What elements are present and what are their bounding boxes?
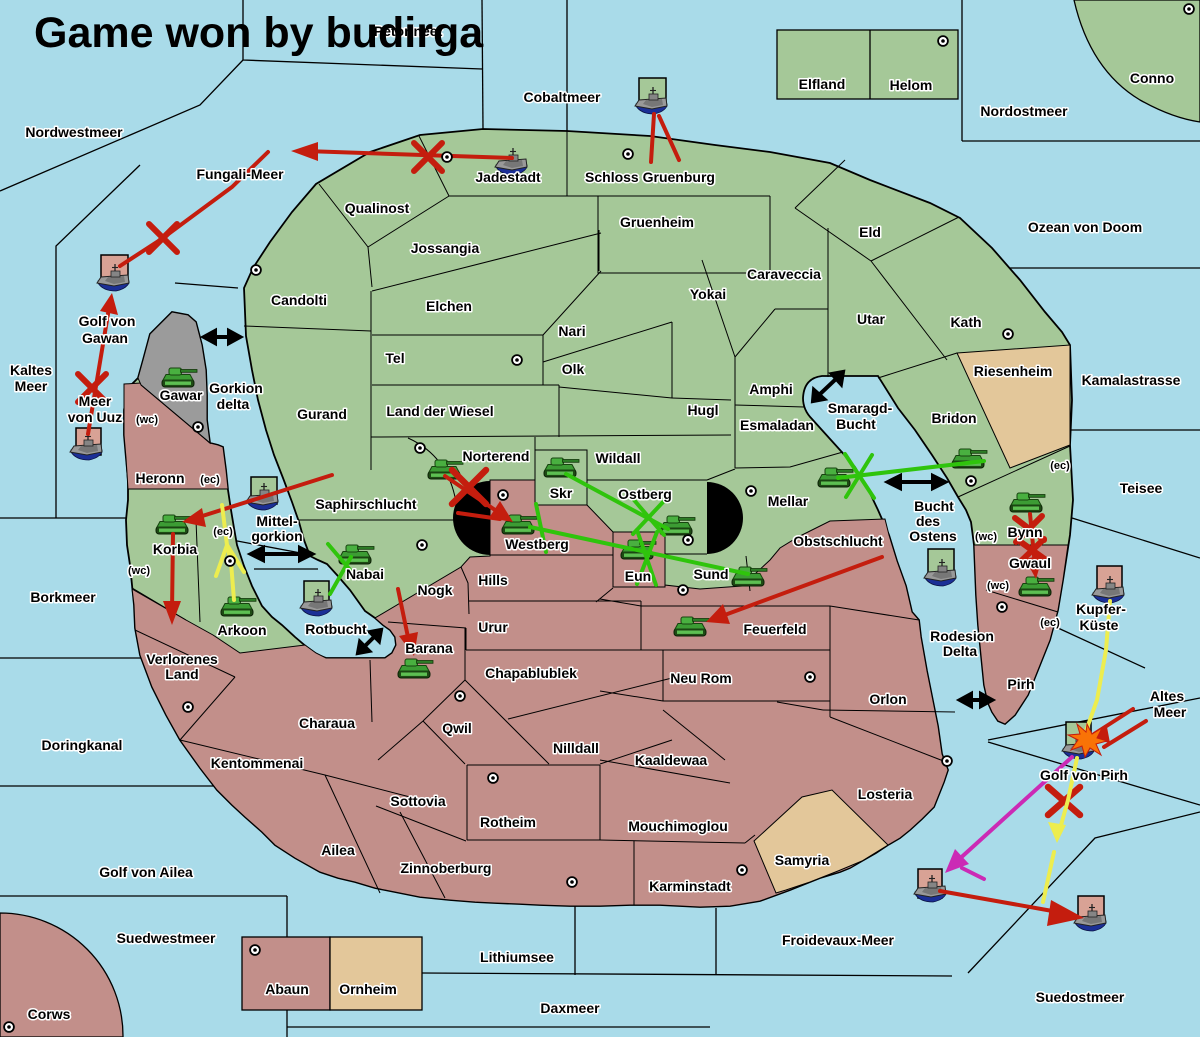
svg-text:Eld: Eld (859, 224, 881, 240)
svg-text:Daxmeer: Daxmeer (540, 1000, 600, 1016)
svg-text:Abaun: Abaun (265, 981, 309, 997)
svg-text:Rotbucht: Rotbucht (305, 621, 367, 637)
svg-text:(ec): (ec) (200, 474, 220, 486)
svg-text:Sottovia: Sottovia (390, 793, 445, 809)
svg-text:Schloss Gruenburg: Schloss Gruenburg (585, 169, 715, 185)
svg-text:Ornheim: Ornheim (339, 981, 397, 997)
svg-text:Mouchimoglou: Mouchimoglou (628, 818, 728, 834)
svg-text:Gurand: Gurand (297, 406, 347, 422)
svg-text:Riesenheim: Riesenheim (974, 363, 1053, 379)
svg-text:Smaragd-: Smaragd- (828, 400, 893, 416)
svg-text:Mittel-: Mittel- (256, 513, 298, 529)
svg-text:Jossangia: Jossangia (411, 240, 480, 256)
svg-text:Ostens: Ostens (909, 528, 957, 544)
svg-text:Neu Rom: Neu Rom (670, 670, 731, 686)
svg-text:des: des (916, 513, 940, 529)
svg-text:Meer: Meer (79, 393, 112, 409)
svg-text:(wc): (wc) (128, 565, 150, 577)
svg-text:Westberg: Westberg (505, 536, 569, 552)
svg-text:Kamalastrasse: Kamalastrasse (1082, 372, 1181, 388)
svg-text:Esmaladan: Esmaladan (740, 417, 814, 433)
svg-text:Gawan: Gawan (82, 330, 128, 346)
svg-text:Froidevaux-Meer: Froidevaux-Meer (782, 932, 895, 948)
svg-text:Skr: Skr (550, 485, 573, 501)
svg-text:Jadestadt: Jadestadt (475, 169, 541, 185)
svg-text:Hills: Hills (478, 572, 508, 588)
svg-text:(ec): (ec) (1040, 617, 1060, 629)
svg-text:Rotheim: Rotheim (480, 814, 536, 830)
svg-text:Saphirschlucht: Saphirschlucht (315, 496, 416, 512)
svg-text:Kupfer-: Kupfer- (1076, 601, 1126, 617)
svg-text:Bucht: Bucht (836, 416, 876, 432)
svg-text:Heronn: Heronn (136, 470, 185, 486)
svg-text:Mellar: Mellar (768, 493, 809, 509)
svg-text:Ozean von Doom: Ozean von Doom (1028, 219, 1142, 235)
svg-text:Corws: Corws (28, 1006, 71, 1022)
svg-text:Charaua: Charaua (299, 715, 355, 731)
svg-text:Delta: Delta (943, 643, 977, 659)
svg-text:Zinnoberburg: Zinnoberburg (401, 860, 492, 876)
svg-text:Olk: Olk (562, 361, 585, 377)
svg-text:Elfland: Elfland (799, 76, 846, 92)
svg-text:Ostberg: Ostberg (618, 486, 672, 502)
svg-text:Lithiumsee: Lithiumsee (480, 949, 554, 965)
svg-text:(wc): (wc) (987, 580, 1009, 592)
svg-text:Sund: Sund (694, 566, 729, 582)
svg-text:Helom: Helom (890, 77, 933, 93)
svg-text:Doringkanal: Doringkanal (42, 737, 123, 753)
svg-text:Land: Land (165, 666, 198, 682)
svg-text:Hugl: Hugl (687, 402, 718, 418)
svg-text:Urur: Urur (478, 619, 508, 635)
svg-text:Bucht: Bucht (914, 498, 954, 514)
svg-text:Verlorenes: Verlorenes (146, 651, 218, 667)
svg-text:Meer: Meer (1154, 704, 1187, 720)
svg-text:Wildall: Wildall (596, 450, 641, 466)
svg-text:Kaltes: Kaltes (10, 362, 52, 378)
svg-text:Teisee: Teisee (1120, 480, 1163, 496)
svg-text:Nilldall: Nilldall (553, 740, 599, 756)
svg-text:Orlon: Orlon (869, 691, 906, 707)
svg-text:Norterend: Norterend (463, 448, 530, 464)
svg-text:Nordostmeer: Nordostmeer (980, 103, 1068, 119)
svg-text:Gorkion: Gorkion (209, 380, 263, 396)
svg-text:(wc): (wc) (136, 414, 158, 426)
svg-text:Ailea: Ailea (321, 842, 355, 858)
svg-text:Rodesion: Rodesion (930, 628, 994, 644)
svg-text:Altes: Altes (1150, 688, 1184, 704)
svg-text:von Uuz: von Uuz (68, 409, 122, 425)
svg-text:Barana: Barana (405, 640, 453, 656)
svg-text:Nogk: Nogk (418, 582, 453, 598)
svg-text:(ec): (ec) (213, 526, 233, 538)
svg-text:Korbia: Korbia (153, 541, 198, 557)
svg-text:Caraveccia: Caraveccia (747, 266, 821, 282)
svg-text:Losteria: Losteria (858, 786, 913, 802)
svg-text:Suedwestmeer: Suedwestmeer (117, 930, 216, 946)
svg-text:Kaaldewaa: Kaaldewaa (635, 752, 708, 768)
svg-text:Küste: Küste (1080, 617, 1119, 633)
svg-text:Feuerfeld: Feuerfeld (743, 621, 806, 637)
svg-text:Fungali-Meer: Fungali-Meer (196, 166, 284, 182)
svg-text:Nari: Nari (558, 323, 585, 339)
svg-text:Suedostmeer: Suedostmeer (1036, 989, 1125, 1005)
svg-text:Pirh: Pirh (1007, 676, 1034, 692)
svg-text:Golf von Ailea: Golf von Ailea (99, 864, 193, 880)
svg-text:Obstschlucht: Obstschlucht (793, 533, 883, 549)
svg-text:Gawar: Gawar (160, 387, 203, 403)
svg-text:Bynn: Bynn (1008, 524, 1043, 540)
svg-text:Samyria: Samyria (775, 852, 830, 868)
svg-text:Gwaul: Gwaul (1009, 555, 1051, 571)
svg-text:Elchen: Elchen (426, 298, 472, 314)
svg-text:Nordwestmeer: Nordwestmeer (25, 124, 123, 140)
svg-text:Utar: Utar (857, 311, 886, 327)
svg-text:Bridon: Bridon (931, 410, 976, 426)
svg-text:Land der Wiesel: Land der Wiesel (386, 403, 493, 419)
svg-text:Meer: Meer (15, 378, 48, 394)
svg-text:Chapablublek: Chapablublek (485, 665, 577, 681)
svg-text:Conno: Conno (1130, 70, 1174, 86)
svg-text:Tel: Tel (385, 350, 404, 366)
svg-text:Borkmeer: Borkmeer (30, 589, 96, 605)
svg-text:Nabai: Nabai (346, 566, 384, 582)
svg-text:Qwil: Qwil (442, 720, 472, 736)
svg-text:Golf von: Golf von (79, 313, 136, 329)
svg-text:Yokai: Yokai (690, 286, 726, 302)
svg-text:Arkoon: Arkoon (218, 622, 267, 638)
svg-text:Cobaltmeer: Cobaltmeer (523, 89, 601, 105)
svg-text:Amphi: Amphi (749, 381, 793, 397)
svg-text:delta: delta (217, 396, 250, 412)
svg-text:(wc): (wc) (975, 531, 997, 543)
svg-text:Qualinost: Qualinost (345, 200, 410, 216)
svg-text:Eun: Eun (625, 568, 651, 584)
svg-text:Gruenheim: Gruenheim (620, 214, 694, 230)
svg-text:Kath: Kath (950, 314, 981, 330)
svg-text:Golf von Pirh: Golf von Pirh (1040, 767, 1128, 783)
svg-text:Game won by budirga: Game won by budirga (34, 9, 484, 57)
svg-text:gorkion: gorkion (251, 528, 302, 544)
svg-text:Kentommenai: Kentommenai (211, 755, 304, 771)
svg-text:(ec): (ec) (1050, 460, 1070, 472)
svg-text:Karminstadt: Karminstadt (649, 878, 731, 894)
svg-text:Candolti: Candolti (271, 292, 327, 308)
